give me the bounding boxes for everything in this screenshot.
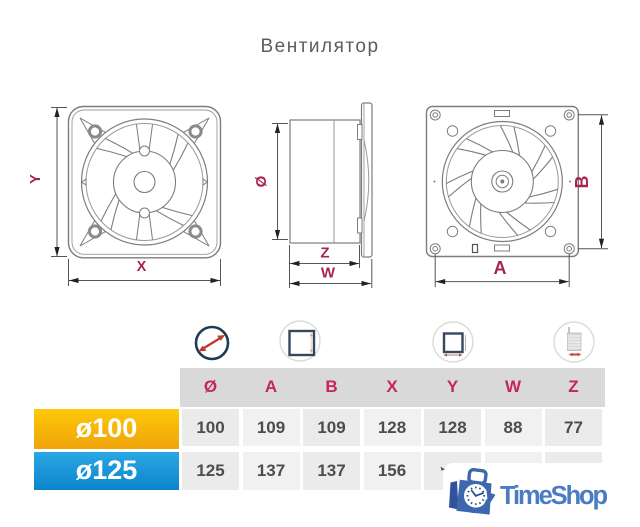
svg-text:Y: Y [28, 174, 44, 184]
svg-text:A: A [494, 258, 507, 278]
svg-text:B: B [572, 176, 592, 189]
svg-text:X: X [137, 259, 147, 275]
svg-text:W: W [321, 265, 336, 282]
svg-text:Z: Z [320, 245, 329, 262]
svg-text:TimeShop: TimeShop [500, 482, 608, 510]
svg-text:Ø: Ø [253, 175, 270, 187]
